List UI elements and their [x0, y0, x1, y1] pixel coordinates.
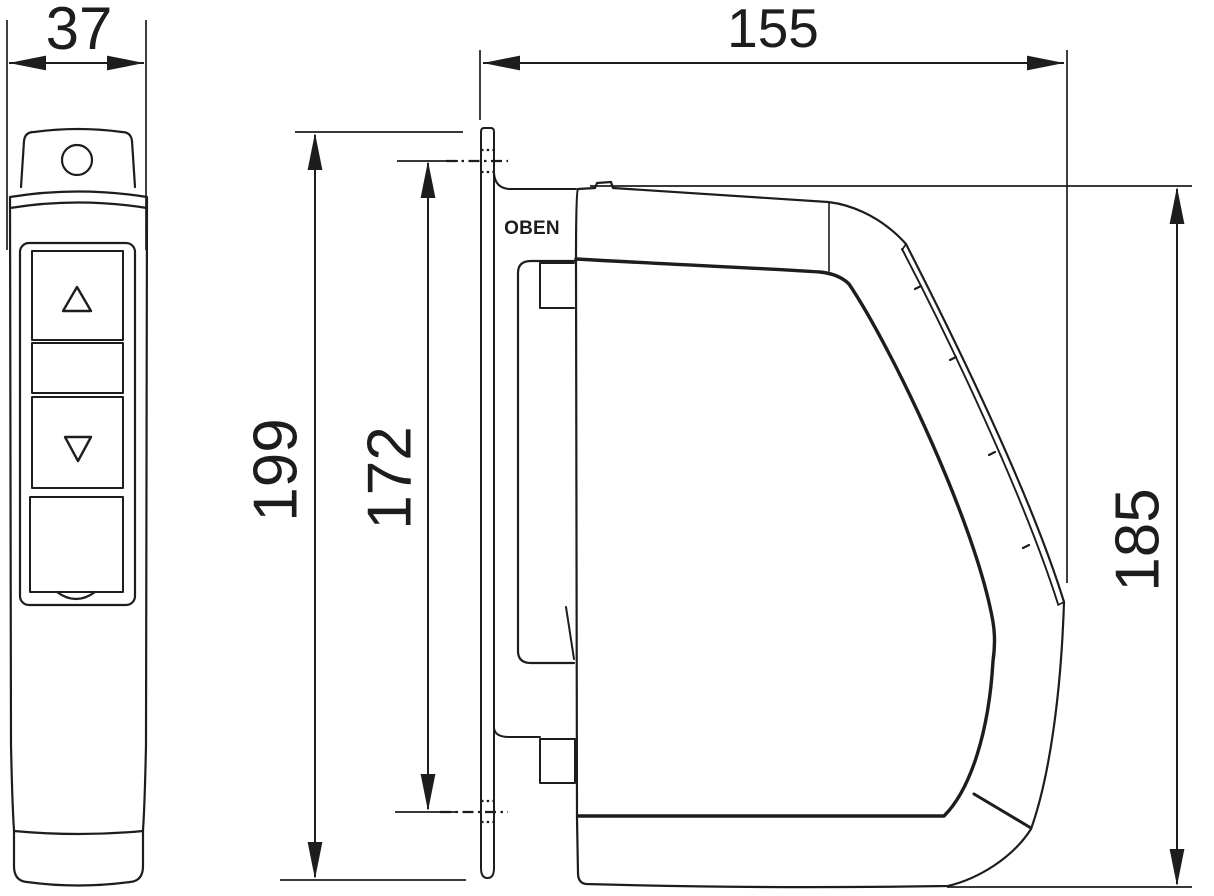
dimension-value-199: 199 [242, 418, 311, 521]
wall-plate [481, 128, 494, 878]
arrowhead-left [9, 56, 46, 71]
remote-stop-button [32, 343, 123, 393]
housing-outline [576, 182, 1064, 887]
remote-control-front-view [10, 129, 147, 886]
arrowhead-right [107, 56, 144, 71]
bracket-release-clip [566, 607, 574, 659]
remote-top-cap [21, 129, 135, 187]
remote-down-button [32, 397, 123, 488]
arrowhead-left [483, 56, 520, 71]
technical-drawing-canvas: OBEN 37 155 199 172 [0, 0, 1214, 896]
arrowhead-down [308, 842, 323, 879]
dimension-value-172: 172 [356, 426, 425, 529]
arrowhead-down [421, 774, 436, 811]
dimension-mount-plate-height: 199 [242, 132, 467, 880]
arrowhead-up [308, 133, 323, 170]
drive-unit-side-view: OBEN [440, 128, 1064, 887]
arrowhead-up [1170, 187, 1185, 224]
remote-battery-cover [30, 497, 123, 592]
plate-bottom-arm [494, 728, 540, 737]
arrowhead-up [421, 161, 436, 198]
arrowhead-right [1027, 56, 1064, 71]
plate-top-arm [494, 173, 576, 189]
lower-mount-hook [540, 739, 575, 783]
arrowhead-down [1170, 849, 1185, 886]
rear-bracket [518, 261, 574, 663]
technical-drawing-page: OBEN 37 155 199 172 [0, 0, 1214, 896]
dimension-value-155: 155 [727, 0, 819, 59]
dimension-value-37: 37 [46, 0, 113, 62]
dimension-hole-spacing: 172 [356, 161, 459, 812]
bracket-top-notch [540, 263, 574, 308]
oben-marking: OBEN [504, 218, 560, 239]
dimension-value-185: 185 [1104, 488, 1173, 591]
remote-up-button [32, 251, 123, 340]
